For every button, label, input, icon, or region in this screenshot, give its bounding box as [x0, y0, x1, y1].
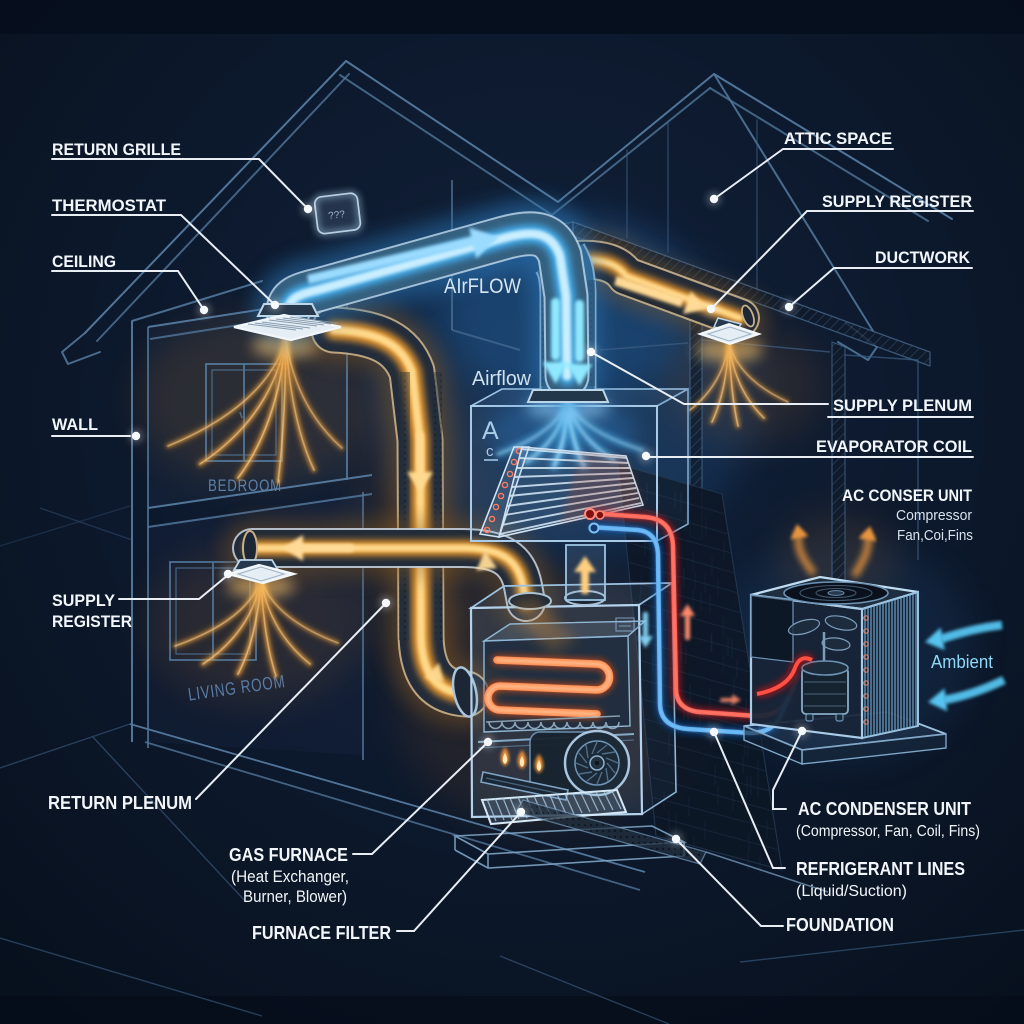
svg-text:THERMOSTAT: THERMOSTAT — [52, 196, 167, 215]
svg-text:Airflow: Airflow — [472, 368, 532, 390]
svg-text:FURNACE FILTER: FURNACE FILTER — [252, 923, 391, 943]
svg-text:CEILING: CEILING — [52, 252, 116, 271]
svg-text:AC CONSER: AC CONSER — [842, 486, 934, 505]
svg-text:REGISTER: REGISTER — [52, 612, 132, 631]
svg-text:WALL: WALL — [52, 415, 98, 434]
svg-text:SUPPLY PLENUM: SUPPLY PLENUM — [833, 396, 972, 415]
svg-text:(Liquid/Suction): (Liquid/Suction) — [796, 883, 907, 900]
svg-text:SUPPLY: SUPPLY — [52, 591, 116, 610]
svg-text:RETURN PLENUM: RETURN PLENUM — [48, 793, 192, 813]
svg-text:Ambient: Ambient — [931, 652, 993, 672]
svg-text:REFRIGERANT LINES: REFRIGERANT LINES — [796, 859, 965, 879]
svg-text:DUCTWORK: DUCTWORK — [875, 248, 971, 267]
svg-text:Fan,Coi,Fins: Fan,Coi,Fins — [897, 527, 973, 544]
svg-text:Burner, Blower): Burner, Blower) — [243, 887, 347, 906]
svg-text:c: c — [486, 443, 494, 460]
svg-text:FOUNDATION: FOUNDATION — [786, 915, 894, 935]
svg-text:Compressor: Compressor — [896, 507, 972, 524]
svg-text:EVAPORATOR COIL: EVAPORATOR COIL — [816, 437, 972, 456]
svg-text:AIrFLOW: AIrFLOW — [444, 275, 521, 298]
svg-text:BEDROOM: BEDROOM — [208, 476, 282, 495]
svg-text:SUPPLY REGISTER: SUPPLY REGISTER — [822, 192, 972, 211]
svg-text:ATTIC SPACE: ATTIC SPACE — [784, 129, 892, 148]
svg-text:(Heat Exchanger,: (Heat Exchanger, — [231, 867, 349, 886]
svg-text:???: ??? — [328, 209, 346, 222]
svg-text:UNIT: UNIT — [938, 486, 973, 505]
svg-text:RETURN GRILLE: RETURN GRILLE — [52, 140, 181, 159]
svg-text:(Compressor, Fan, Coil, Fins): (Compressor, Fan, Coil, Fins) — [796, 823, 980, 840]
svg-text:AC CONDENSER UNIT: AC CONDENSER UNIT — [798, 799, 971, 819]
svg-text:GAS FURNACE: GAS FURNACE — [229, 845, 348, 865]
svg-text:A: A — [482, 417, 499, 445]
